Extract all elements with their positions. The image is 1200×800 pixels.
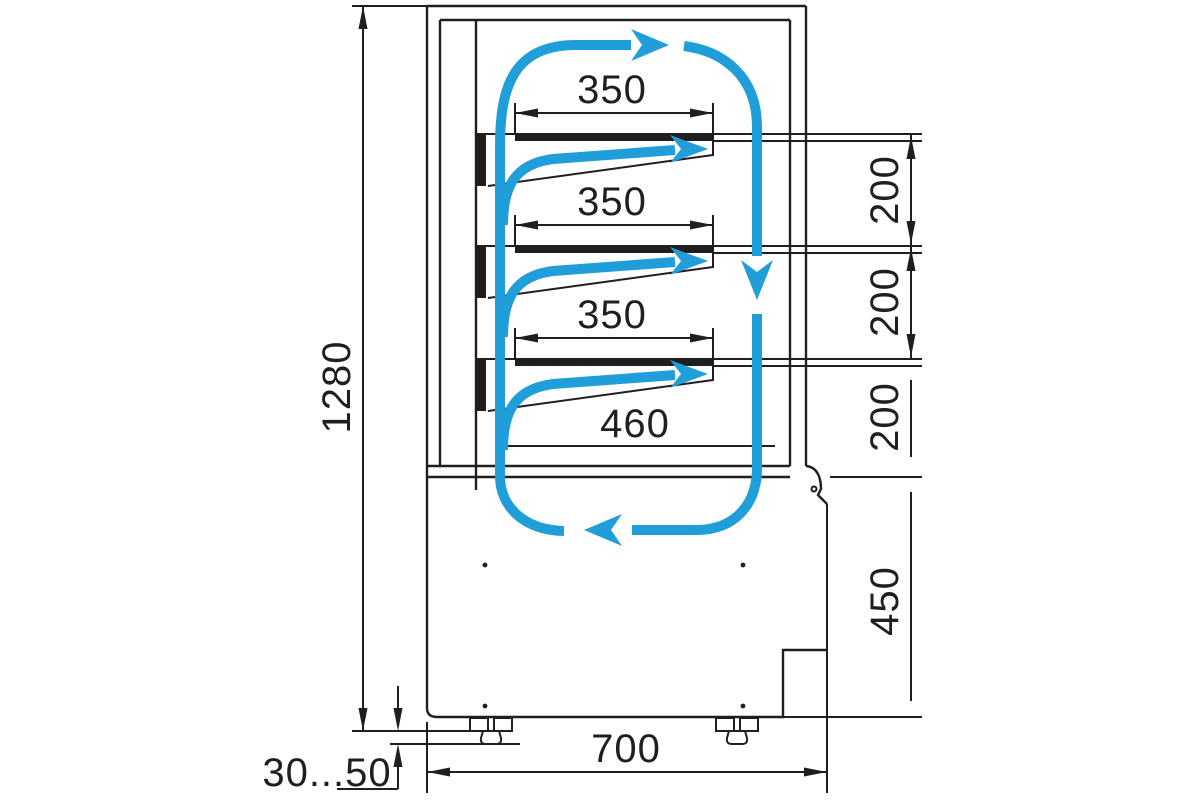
rivet-dot — [812, 487, 817, 492]
dim-label-gap-2: 200 — [863, 267, 907, 337]
dimension-depth: 700 — [427, 504, 827, 793]
arrow-down — [907, 334, 916, 357]
rivet-dot — [483, 704, 488, 709]
shelf-board — [515, 245, 713, 253]
dimension-arrow-right — [690, 334, 713, 343]
dimension-arrow-up — [359, 6, 368, 29]
airflow-arrow-down — [741, 260, 773, 300]
foot-pad — [727, 731, 747, 744]
technical-drawing-canvas: 1280 350 350 350 460 — [0, 0, 1200, 800]
airflow-arrow-top-right — [631, 29, 669, 61]
display-case-section-drawing: 1280 350 350 350 460 — [0, 0, 1200, 800]
arrow-down — [394, 708, 403, 731]
foot-screw-block — [470, 718, 488, 731]
arrow-up — [907, 136, 916, 159]
dimension-arrow-left — [515, 221, 538, 230]
dimension-bottom-shelf-width: 460 — [495, 402, 775, 446]
dimension-arrow-right — [804, 768, 827, 777]
arrow-up — [394, 744, 403, 767]
dim-label-depth: 700 — [591, 727, 661, 771]
rivet-dot — [741, 563, 746, 568]
shelf-wall-bracket — [477, 358, 486, 411]
dim-label-shelf-width-1: 350 — [577, 68, 647, 112]
dim-label-gap-3: 200 — [863, 382, 907, 452]
dim-label-gap-1: 200 — [863, 155, 907, 225]
dimension-arrow-right — [690, 109, 713, 118]
dim-label-bottom-shelf-width: 460 — [600, 402, 670, 446]
airflow-arrow-left — [584, 514, 622, 546]
dimension-overall-height: 1280 — [315, 6, 427, 731]
rivet-dot — [483, 563, 488, 568]
foot-screw-block — [494, 718, 512, 731]
foot-screw-block — [740, 718, 758, 731]
dimension-arrow-left — [515, 334, 538, 343]
arrow-down — [907, 221, 916, 244]
shelf-wall-bracket — [477, 133, 486, 186]
arrow-up — [907, 248, 916, 271]
shelf-board — [515, 133, 713, 141]
dim-label-overall-height: 1280 — [315, 341, 359, 434]
dimension-arrow-left — [427, 768, 450, 777]
foot-screw-block — [716, 718, 734, 731]
rivet-dot — [741, 704, 746, 709]
dimension-arrow-down — [359, 708, 368, 731]
dim-label-base-height: 450 — [863, 566, 907, 636]
shelf-board — [515, 358, 713, 366]
dimension-arrow-left — [515, 109, 538, 118]
dim-label-shelf-width-2: 350 — [577, 180, 647, 224]
dimension-arrow-right — [690, 221, 713, 230]
dim-label-leg-height: 30...50 — [262, 751, 391, 795]
foot-pad — [481, 731, 501, 744]
foot-right — [716, 718, 758, 744]
dimension-right-chain: 200 200 200 450 — [713, 134, 922, 717]
front-corner-profile — [806, 466, 827, 504]
dim-label-shelf-width-3: 350 — [577, 293, 647, 337]
shelf-wall-bracket — [477, 245, 486, 298]
